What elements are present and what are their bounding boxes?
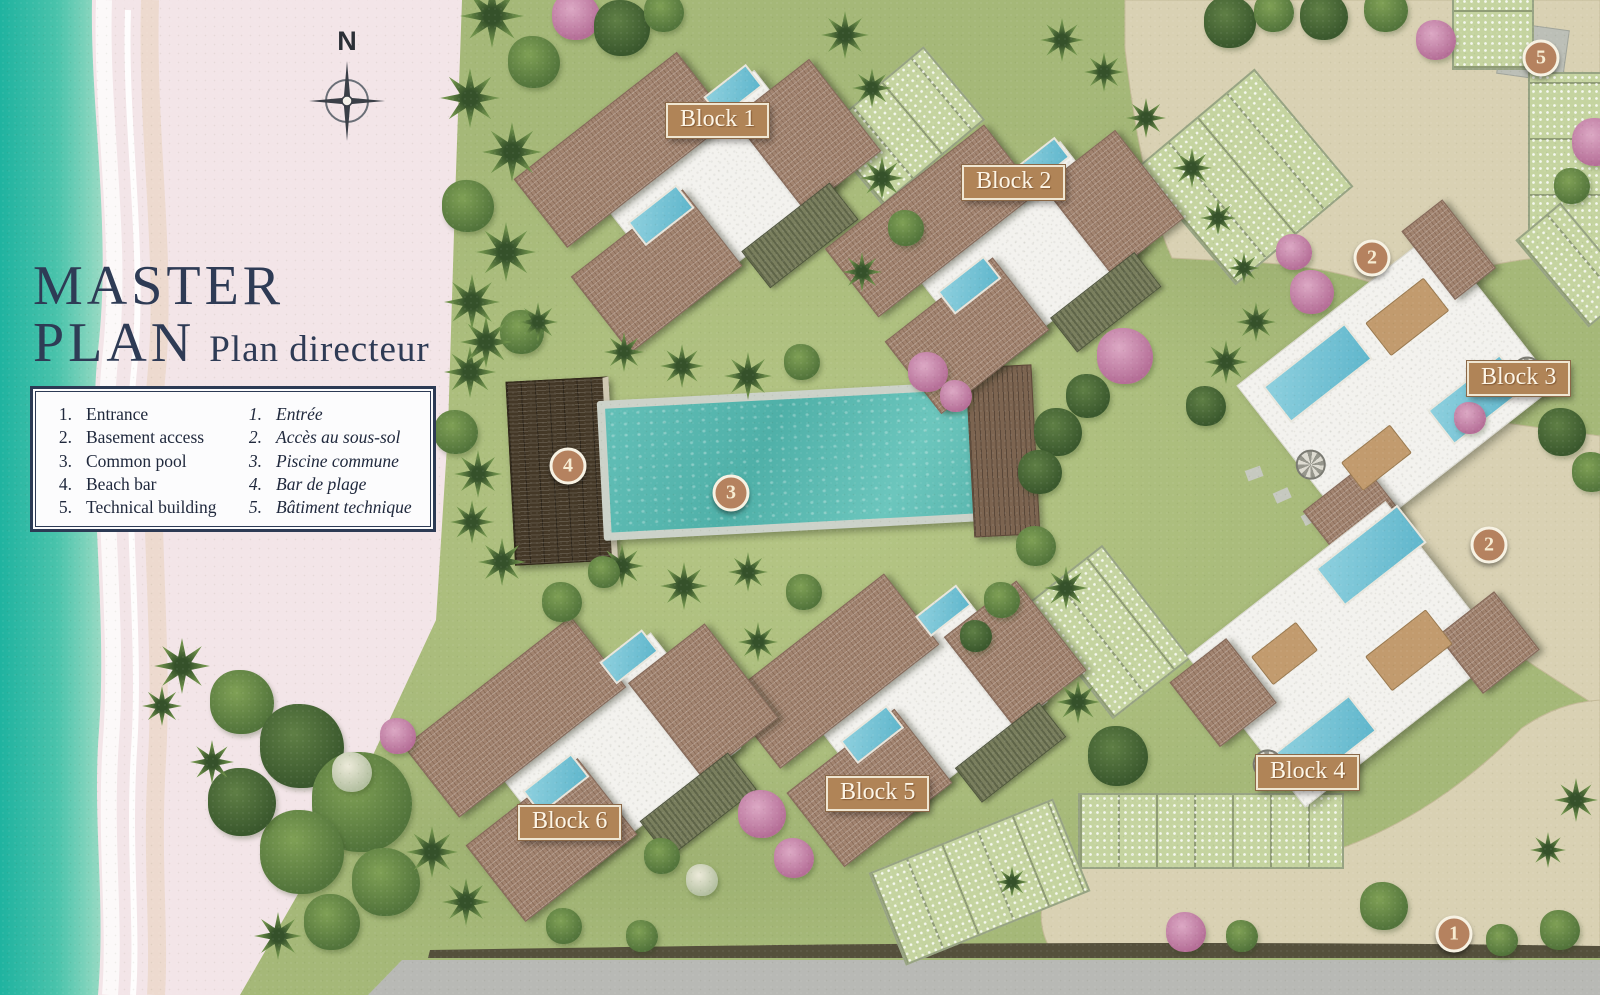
- marker-3-common-pool: 3: [713, 475, 750, 512]
- block-label-6: Block 6: [518, 805, 621, 840]
- block-label-4: Block 4: [1256, 755, 1359, 790]
- block-label-5: Block 5: [826, 776, 929, 811]
- legend-column-french: 1.Entrée 2.Accès au sous-sol 3.Piscine c…: [242, 404, 424, 518]
- legend-item-acces-sous-sol: Accès au sous-sol: [276, 427, 400, 448]
- annotation-layer: N MASTER PLAN Plan directeur 1.Entrance …: [0, 0, 1600, 995]
- legend-item-beach-bar: Beach bar: [86, 474, 156, 495]
- title-line-1: MASTER: [33, 258, 430, 315]
- legend-item-piscine-commune: Piscine commune: [276, 451, 399, 472]
- plan-title: MASTER PLAN Plan directeur: [33, 258, 430, 372]
- block-label-3: Block 3: [1467, 361, 1570, 396]
- marker-1-entrance: 1: [1436, 916, 1473, 953]
- marker-2-basement-access-mid: 2: [1471, 527, 1508, 564]
- compass-rose: N: [308, 26, 386, 150]
- marker-4-beach-bar: 4: [550, 448, 587, 485]
- compass-north-label: N: [308, 26, 386, 57]
- legend-item-entree: Entrée: [276, 404, 323, 425]
- legend-item-basement-access: Basement access: [86, 427, 204, 448]
- legend-box: 1.Entrance 2.Basement access 3.Common po…: [30, 386, 436, 532]
- legend-item-technical-building: Technical building: [86, 497, 216, 518]
- legend-item-bar-de-plage: Bar de plage: [276, 474, 366, 495]
- block-label-1: Block 1: [666, 103, 769, 138]
- marker-2-basement-access-top: 2: [1354, 240, 1391, 277]
- marker-5-technical-building: 5: [1523, 40, 1560, 77]
- legend-item-batiment-technique: Bâtiment technique: [276, 497, 412, 518]
- master-plan-canvas: N MASTER PLAN Plan directeur 1.Entrance …: [0, 0, 1600, 995]
- legend-column-english: 1.Entrance 2.Basement access 3.Common po…: [52, 404, 234, 518]
- block-label-2: Block 2: [962, 165, 1065, 200]
- legend-item-common-pool: Common pool: [86, 451, 187, 472]
- legend-item-entrance: Entrance: [86, 404, 148, 425]
- compass-star-icon: [308, 57, 386, 145]
- title-subtitle: Plan directeur: [209, 331, 430, 369]
- title-line-2: PLAN: [33, 315, 195, 372]
